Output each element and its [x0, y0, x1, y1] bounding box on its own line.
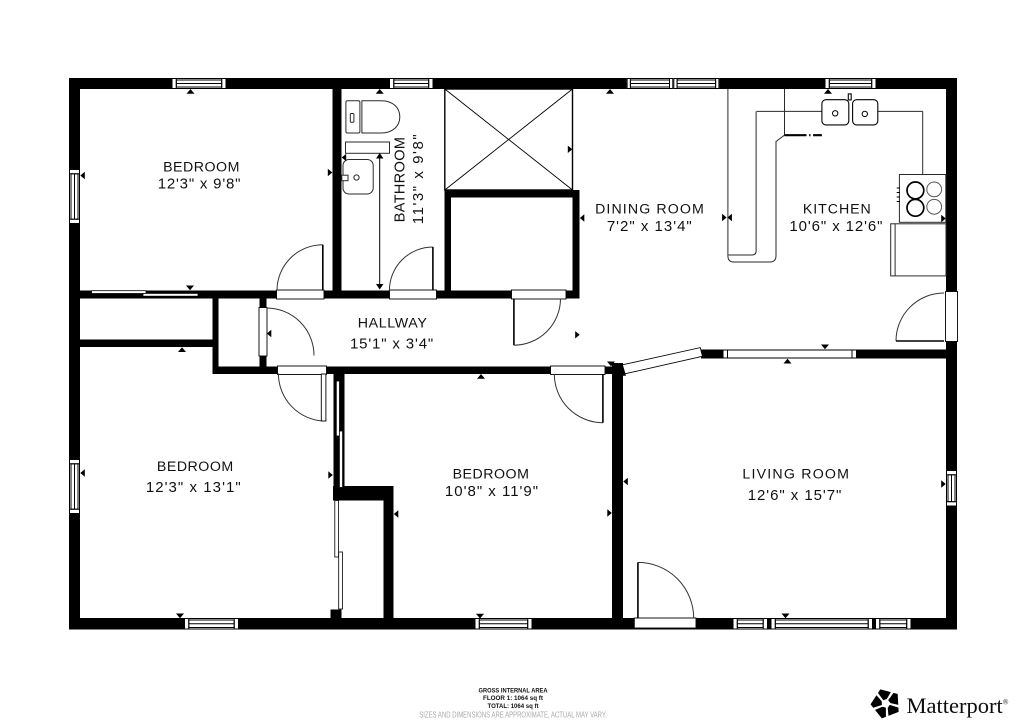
svg-text:15'1" x 3'4": 15'1" x 3'4" [350, 336, 434, 353]
svg-text:HALLWAY: HALLWAY [358, 316, 428, 332]
svg-text:BEDROOM: BEDROOM [157, 459, 234, 475]
svg-text:BEDROOM: BEDROOM [453, 467, 530, 483]
svg-text:12'3" x 9'8": 12'3" x 9'8" [158, 176, 242, 193]
svg-text:12'3" x 13'1": 12'3" x 13'1" [146, 479, 242, 496]
svg-text:DINING ROOM: DINING ROOM [595, 202, 705, 218]
svg-text:11'3" x 9'8": 11'3" x 9'8" [410, 133, 427, 224]
svg-text:10'6" x 12'6": 10'6" x 12'6" [789, 218, 883, 235]
svg-text:Matterport®: Matterport® [907, 693, 1009, 718]
svg-text:BEDROOM: BEDROOM [163, 160, 240, 176]
svg-text:12'6" x 15'7": 12'6" x 15'7" [748, 487, 843, 504]
svg-text:LIVING ROOM: LIVING ROOM [742, 467, 850, 483]
svg-text:FLOOR 1: 1064 sq ft: FLOOR 1: 1064 sq ft [483, 695, 544, 702]
svg-text:GROSS INTERNAL AREA: GROSS INTERNAL AREA [479, 687, 548, 694]
svg-text:SIZES AND DIMENSIONS ARE APPRO: SIZES AND DIMENSIONS ARE APPROXIMATE, AC… [419, 711, 607, 720]
svg-text:BATHROOM: BATHROOM [393, 137, 409, 223]
svg-text:10'8" x 11'9": 10'8" x 11'9" [445, 483, 539, 500]
svg-text:KITCHEN: KITCHEN [803, 202, 872, 218]
svg-text:TOTAL: 1064 sq ft: TOTAL: 1064 sq ft [488, 703, 540, 710]
svg-text:7'2" x 13'4": 7'2" x 13'4" [607, 218, 693, 235]
